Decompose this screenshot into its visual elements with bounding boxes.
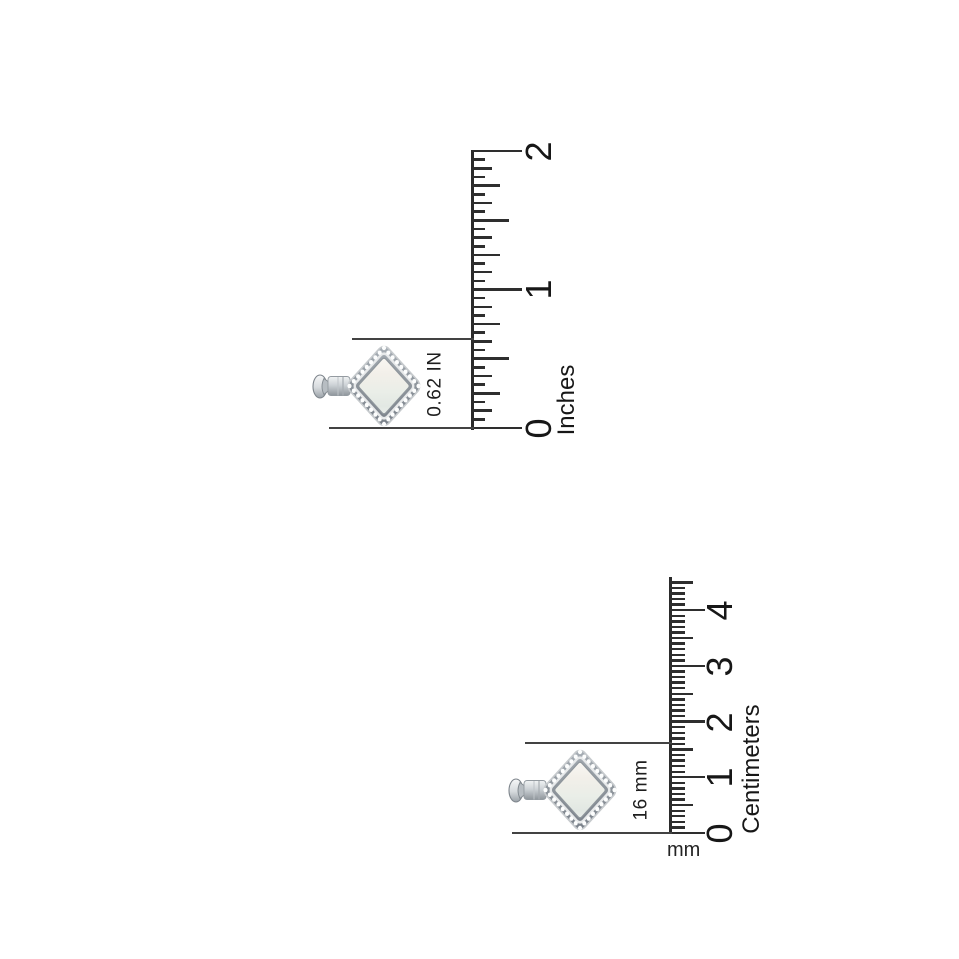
cm-tick-label-3: 3 <box>702 655 738 676</box>
ruler-tick <box>670 676 685 678</box>
ruler-tick <box>670 715 685 717</box>
cm-tick-label-0: 0 <box>702 822 738 843</box>
ruler-tick <box>472 297 485 300</box>
cm-tick-label-2: 2 <box>702 711 738 732</box>
ruler-tick <box>670 670 685 672</box>
ruler-tick <box>472 228 485 231</box>
ruler-tick <box>670 704 685 706</box>
ruler-tick <box>670 587 685 589</box>
ruler-tick <box>472 271 492 274</box>
ruler-tick <box>670 681 685 683</box>
product-measurement-image: 0 1 2 Inches 0.62 IN 0 1 2 3 4 Centimete… <box>0 0 959 959</box>
ruler-tick <box>670 620 685 622</box>
ruler-tick <box>670 598 685 600</box>
cm-tick-label-4: 4 <box>702 599 738 620</box>
ruler-tick <box>472 176 485 179</box>
ruler-tick <box>670 687 685 689</box>
ruler-tick <box>670 654 685 656</box>
inch-tick-label-0: 0 <box>521 417 557 438</box>
ruler-tick <box>472 306 492 309</box>
ruler-tick <box>472 219 509 222</box>
ruler-tick <box>670 642 685 644</box>
ruler-tick <box>670 659 685 661</box>
ruler-tick <box>472 288 522 291</box>
ruler-tick <box>670 698 685 700</box>
ruler-tick <box>472 158 485 161</box>
ruler-tick <box>472 210 485 213</box>
ruler-tick <box>472 262 485 265</box>
ruler-tick <box>670 648 685 650</box>
cm-tick-label-1: 1 <box>702 766 738 787</box>
ruler-tick <box>472 150 522 153</box>
ruler-tick <box>670 615 685 617</box>
ruler-tick <box>670 581 693 583</box>
centimeters-unit-label: Centimeters <box>740 704 764 833</box>
ruler-tick <box>670 631 685 633</box>
ruler-tick <box>472 184 500 187</box>
ruler-tick <box>472 427 522 430</box>
ruler-tick <box>472 254 500 257</box>
ruler-tick <box>472 202 492 205</box>
inch-tick-label-2: 2 <box>521 140 557 161</box>
ruler-tick <box>670 626 685 628</box>
ruler-tick <box>472 167 492 170</box>
ruler-tick <box>670 693 693 695</box>
ruler-tick <box>472 245 485 248</box>
inch-tick-label-1: 1 <box>521 278 557 299</box>
ruler-tick <box>472 236 492 239</box>
ruler-tick <box>670 592 685 594</box>
pendant-bottom <box>485 725 675 855</box>
pendant-top <box>289 321 479 451</box>
ruler-tick <box>472 193 485 196</box>
ruler-tick <box>472 280 485 283</box>
ruler-tick <box>670 709 685 711</box>
ruler-tick <box>472 314 485 317</box>
inches-unit-label: Inches <box>555 365 579 436</box>
ruler-tick <box>670 637 693 639</box>
ruler-tick <box>670 603 685 605</box>
